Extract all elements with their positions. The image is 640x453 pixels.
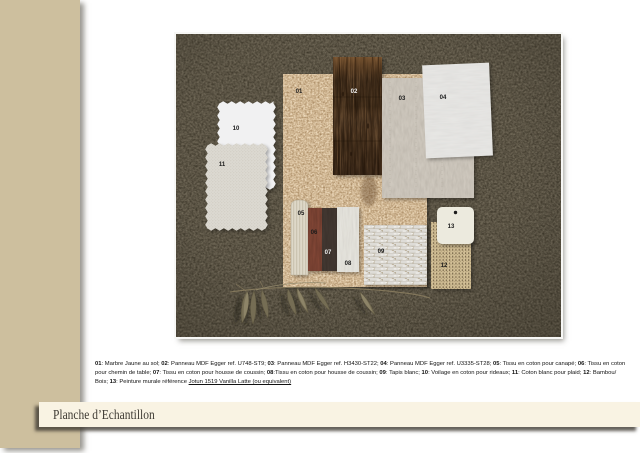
svg-text:03: 03 [399,96,406,102]
svg-text:01: 01 [296,89,303,95]
svg-text:07: 07 [325,250,332,256]
svg-text:10: 10 [233,126,240,132]
svg-text:12: 12 [441,263,448,269]
svg-text:02: 02 [351,89,358,95]
svg-text:11: 11 [219,162,226,168]
svg-text:13: 13 [448,224,455,230]
svg-text:04: 04 [440,95,447,101]
svg-text:09: 09 [378,249,385,255]
svg-text:05: 05 [298,211,305,217]
svg-text:06: 06 [311,230,318,236]
svg-text:08: 08 [345,261,352,267]
